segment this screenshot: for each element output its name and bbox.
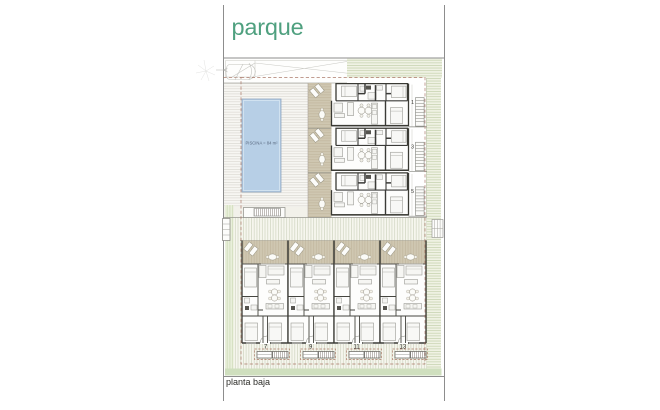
svg-text:parque: parque (232, 14, 304, 40)
svg-text:11: 11 (354, 345, 361, 351)
svg-text:planta baja: planta baja (226, 377, 270, 387)
svg-text:PISCINA = 84 m²: PISCINA = 84 m² (246, 141, 279, 146)
svg-text:5: 5 (411, 189, 414, 195)
svg-text:1: 1 (411, 100, 414, 106)
svg-text:3: 3 (411, 145, 414, 151)
svg-text:13: 13 (400, 345, 407, 351)
